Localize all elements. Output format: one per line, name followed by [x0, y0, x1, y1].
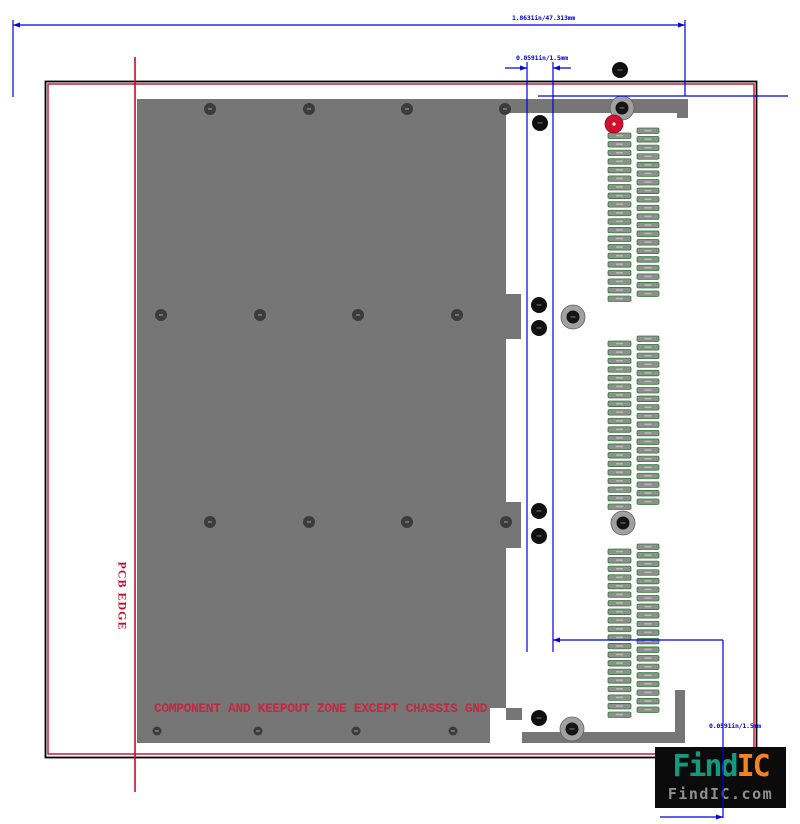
- dimension-bottom-gap-label: 0.0591in/1.5mm: [709, 722, 761, 730]
- keepout-note: COMPONENT AND KEEPOUT ZONE EXCEPT CHASSI…: [154, 701, 487, 716]
- pcb-edge-label: PCB EDGE: [115, 562, 130, 630]
- dimension-arrowhead: [553, 638, 560, 643]
- dimension-top-gap-label: 0.0591in/1.5mm: [516, 54, 568, 62]
- dimension-arrowhead: [13, 23, 20, 28]
- dimension-arrowhead: [716, 815, 723, 820]
- dimension-overall-width-label: 1.8631in/47.313mm: [512, 14, 575, 22]
- dimension-arrowhead: [553, 66, 560, 71]
- dimension-arrowhead: [520, 66, 527, 71]
- dimension-arrowhead: [678, 23, 685, 28]
- pcb-footprint-drawing: FindIC FindIC.com 1.8631in/47.313mm 0.05…: [0, 0, 800, 824]
